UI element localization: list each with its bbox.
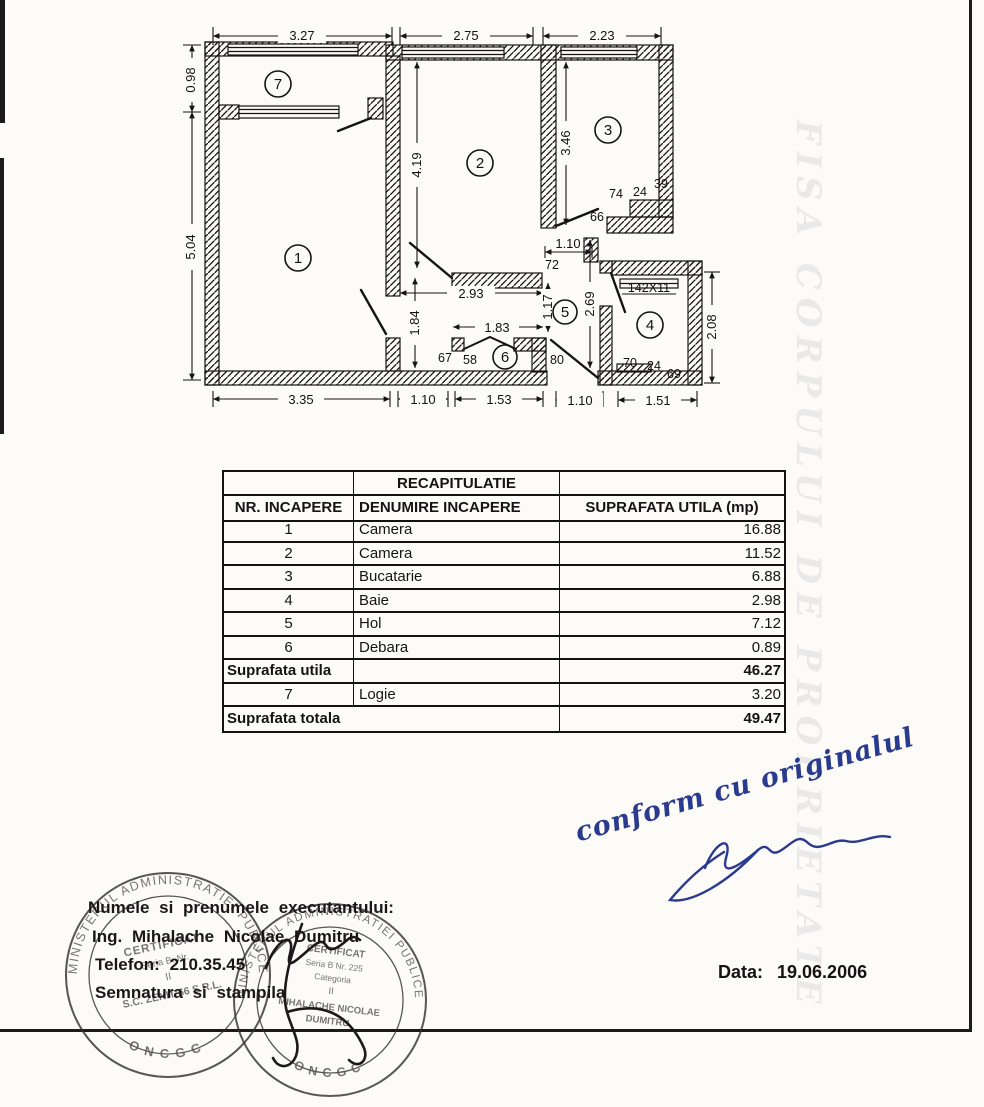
svg-text:ONCGC: ONCGC (127, 1037, 210, 1061)
walls (205, 42, 702, 385)
dim-label: 66 (590, 210, 604, 224)
stamp-line: Categoria (314, 971, 352, 985)
cell-nr: 7 (224, 684, 354, 708)
dim-label: 2.75 (453, 28, 478, 43)
scanned-document-page: FISA CORPULUI DE PROPRIETATE (0, 0, 984, 1107)
dim-label: 2.69 (582, 291, 597, 316)
dim-label: 4.19 (409, 152, 424, 177)
executor-label: Numele si prenumele executantului: (88, 898, 394, 918)
cell-name: Camera (354, 543, 560, 567)
subtotal-value: 46.27 (560, 660, 784, 684)
total-label: Suprafata totala (224, 707, 560, 731)
col-header-nr: NR. INCAPERE (224, 496, 354, 522)
cell-area: 7.12 (560, 613, 784, 637)
cell-nr: 1 (224, 519, 354, 543)
cell-area: 0.89 (560, 637, 784, 661)
room-number: 1 (294, 250, 302, 267)
dim-label: 58 (463, 353, 477, 367)
room-number: 5 (561, 304, 569, 321)
cell-area: 16.88 (560, 519, 784, 543)
date-label: Data: (718, 962, 763, 982)
dim-label: 80 (550, 353, 564, 367)
dim-label: 24 (647, 359, 661, 373)
cell-area: 2.98 (560, 590, 784, 614)
cell-nr: 4 (224, 590, 354, 614)
dim-label: 3.27 (289, 28, 314, 43)
room-number: 7 (274, 76, 282, 93)
cell-area: 11.52 (560, 543, 784, 567)
dim-label: 1.84 (407, 310, 422, 335)
dim-label: 1.17 (540, 294, 555, 319)
dim-label: 24 (633, 185, 647, 199)
svg-text:ONCGC: ONCGC (292, 1058, 368, 1080)
cell-name: Baie (354, 590, 560, 614)
dim-label: 142X11 (628, 281, 670, 295)
room-number: 3 (604, 122, 612, 139)
stamp-oncgc-text: ONCGC (292, 1058, 368, 1080)
table-title: RECAPITULATIE (354, 472, 560, 496)
signature-label: Semnatura si stampila (95, 983, 285, 1003)
dim-label: 1.10 (555, 236, 580, 251)
dim-label: 2.08 (704, 314, 719, 339)
executor-name: Ing. Mihalache Nicolae Dumitru (92, 927, 359, 947)
floor-plan: 3.27 2.75 2.23 0.98 5.04 4.19 3.46 1.84 … (0, 0, 984, 440)
cell-area: 3.20 (560, 684, 784, 708)
subtotal-label: Suprafata utila (224, 660, 354, 684)
dim-label: 70 (623, 356, 637, 370)
stamp-line: DUMITRU (305, 1013, 350, 1029)
dim-label: 1.10 (567, 393, 592, 408)
dim-label: 3.35 (288, 392, 313, 407)
table-cell (560, 472, 784, 496)
table-cell (354, 660, 560, 684)
dim-label: 1.53 (486, 392, 511, 407)
cell-nr: 3 (224, 566, 354, 590)
cell-name: Logie (354, 684, 560, 708)
col-header-suprafata: SUPRAFATA UTILA (mp) (560, 496, 784, 522)
handwritten-signature-blue (640, 790, 970, 920)
cell-nr: 6 (224, 637, 354, 661)
cell-nr: 2 (224, 543, 354, 567)
cell-name: Bucatarie (354, 566, 560, 590)
dim-label: 67 (438, 351, 452, 365)
stamp-line: II (328, 986, 335, 998)
dim-label: 5.04 (183, 234, 198, 259)
dim-label: 72 (545, 258, 559, 272)
room-number: 4 (646, 317, 654, 334)
dim-label: 2.23 (589, 28, 614, 43)
stamp-oncgc-text: ONCGC (127, 1037, 210, 1061)
room-number: 2 (476, 155, 484, 172)
dim-label: 69 (667, 367, 681, 381)
cell-name: Hol (354, 613, 560, 637)
date-line: Data:19.06.2006 (718, 962, 881, 983)
dim-label: 3.46 (558, 130, 573, 155)
dim-label: 39 (654, 177, 668, 191)
dim-label: 1.83 (484, 320, 509, 335)
cell-name: Camera (354, 519, 560, 543)
dim-label: 2.93 (458, 286, 483, 301)
total-value: 49.47 (560, 707, 784, 731)
recap-table: RECAPITULATIE NR. INCAPERE DENUMIRE INCA… (222, 470, 786, 733)
cell-nr: 5 (224, 613, 354, 637)
cell-area: 6.88 (560, 566, 784, 590)
dim-label: 1.51 (645, 393, 670, 408)
date-value: 19.06.2006 (777, 962, 867, 982)
dim-label: 0.98 (183, 67, 198, 92)
room-number: 6 (501, 349, 509, 366)
cell-name: Debara (354, 637, 560, 661)
dim-label: 1.10 (410, 392, 435, 407)
col-header-denumire: DENUMIRE INCAPERE (354, 496, 560, 522)
table-cell (224, 472, 354, 496)
executor-phone: Telefon: 210.35.45 (95, 955, 245, 975)
dim-label: 74 (609, 187, 623, 201)
